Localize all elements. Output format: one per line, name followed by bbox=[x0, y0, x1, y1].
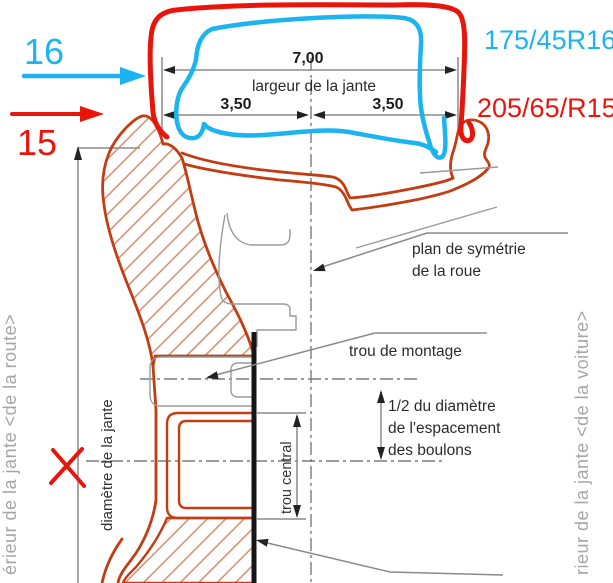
cyan-arrow-head-icon bbox=[120, 67, 146, 85]
tire-code-16-label: 175/45R16 bbox=[484, 25, 613, 55]
bottom-callout-leader bbox=[256, 539, 503, 575]
bolt-circle-dimension: 1/2 du diamètre de l'espacement des boul… bbox=[377, 390, 501, 460]
arrowhead-center-left-icon bbox=[297, 111, 309, 119]
wheel-rim-cross-section-diagram: 7,00 largeur de la jante 3,50 3,50 diamè… bbox=[0, 0, 613, 583]
center-hole-label: trou central bbox=[279, 441, 295, 514]
leader-line bbox=[316, 233, 427, 269]
arrowhead-center-right-icon bbox=[313, 111, 325, 119]
mounting-hole-text: trou de montage bbox=[349, 343, 462, 360]
arrowhead-up-icon bbox=[293, 414, 301, 427]
leader-line bbox=[259, 541, 503, 575]
mounting-hole-pocket bbox=[150, 357, 253, 406]
x-stroke-1 bbox=[53, 450, 84, 486]
rim-width-label: largeur de la jante bbox=[252, 78, 376, 95]
arrowhead-up-icon bbox=[377, 390, 385, 403]
rim-barrel-top-line bbox=[182, 153, 453, 198]
red-arrow-head-icon bbox=[80, 106, 104, 122]
bolt-circle-text-line1: 1/2 du diamètre bbox=[388, 398, 496, 415]
side-label-right: rieur de la jante <de la voiture> bbox=[572, 310, 592, 575]
side-label-left: érieur de la jante <de la route> bbox=[0, 314, 20, 575]
red-x-mark bbox=[51, 449, 84, 486]
bolt-circle-text-line3: des boulons bbox=[388, 442, 472, 459]
diagram-canvas: 7,00 largeur de la jante 3,50 3,50 diamè… bbox=[0, 0, 613, 583]
hub-section-hatched bbox=[123, 518, 253, 583]
rim-width-value: 7,00 bbox=[292, 50, 323, 67]
leader-arrowhead-icon bbox=[206, 371, 219, 379]
spoke-section-hatched bbox=[103, 116, 253, 366]
center-hole-dimension: trou central bbox=[257, 413, 306, 519]
leader-arrowhead-icon bbox=[313, 264, 326, 272]
rim-size-16-label: 16 bbox=[24, 31, 64, 72]
symmetry-plane-callout: plan de symétrie de la roue bbox=[313, 233, 568, 280]
rim-size-15-label: 15 bbox=[17, 122, 57, 163]
hub-bore-inner bbox=[179, 421, 253, 508]
leader-arrowhead-icon bbox=[256, 539, 269, 547]
arrowhead-right-icon bbox=[445, 66, 457, 74]
bolt-circle-text-line2: de l'espacement bbox=[388, 420, 501, 437]
half-width-left-value: 3,50 bbox=[220, 96, 251, 113]
technical-drawing: 7,00 largeur de la jante 3,50 3,50 diamè… bbox=[0, 50, 592, 583]
rim-width-dimension: 7,00 largeur de la jante 3,50 3,50 bbox=[162, 50, 458, 131]
arrowhead-down-icon bbox=[377, 447, 385, 460]
tire-code-15-label: 205/65/R15 bbox=[477, 93, 613, 123]
rim-diameter-label: diamètre de la jante bbox=[99, 399, 116, 531]
arrowhead-left-icon bbox=[163, 66, 175, 74]
spoke-window-upper-contour bbox=[227, 213, 290, 245]
symmetry-plane-text-line1: plan de symétrie bbox=[412, 241, 526, 258]
arrowhead-right-icon bbox=[445, 111, 457, 119]
arrowhead-left-icon bbox=[163, 111, 175, 119]
half-width-right-value: 3,50 bbox=[372, 96, 403, 113]
symmetry-plane-text-line2: de la roue bbox=[412, 263, 481, 280]
